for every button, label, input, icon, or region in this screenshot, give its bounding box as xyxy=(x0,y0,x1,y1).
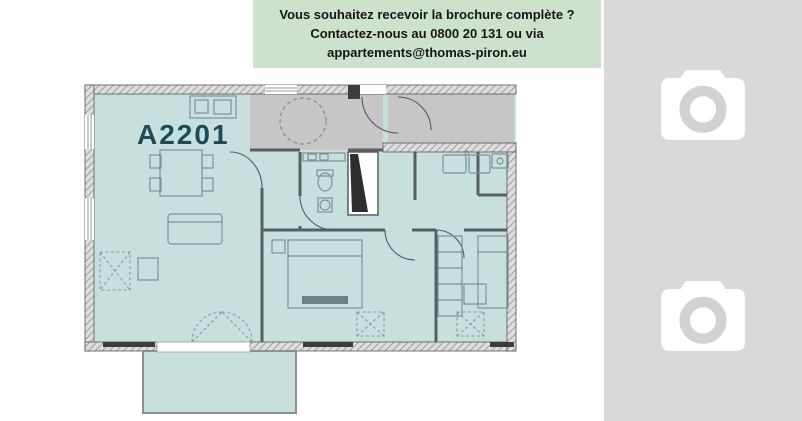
banner-line-3: appartements@thomas-piron.eu xyxy=(327,44,527,62)
corridor xyxy=(388,94,514,143)
listing-page: Vous souhaitez recevoir la brochure comp… xyxy=(0,0,802,421)
photo-placeholder-2[interactable] xyxy=(604,211,802,421)
unit-label: A2201 xyxy=(137,119,230,150)
photo-placeholder-1[interactable] xyxy=(604,0,802,211)
floor-plan: A2201 xyxy=(82,82,518,421)
floor-plan-image: A2201 xyxy=(82,82,518,421)
shaft xyxy=(348,152,378,215)
banner-line-1: Vous souhaitez recevoir la brochure comp… xyxy=(279,6,574,24)
photo-panel xyxy=(604,0,802,421)
camera-icon xyxy=(648,268,758,364)
camera-icon xyxy=(648,57,758,153)
contact-banner: Vous souhaitez recevoir la brochure comp… xyxy=(253,0,601,68)
banner-line-2: Contactez-nous au 0800 20 131 ou via xyxy=(310,25,543,43)
